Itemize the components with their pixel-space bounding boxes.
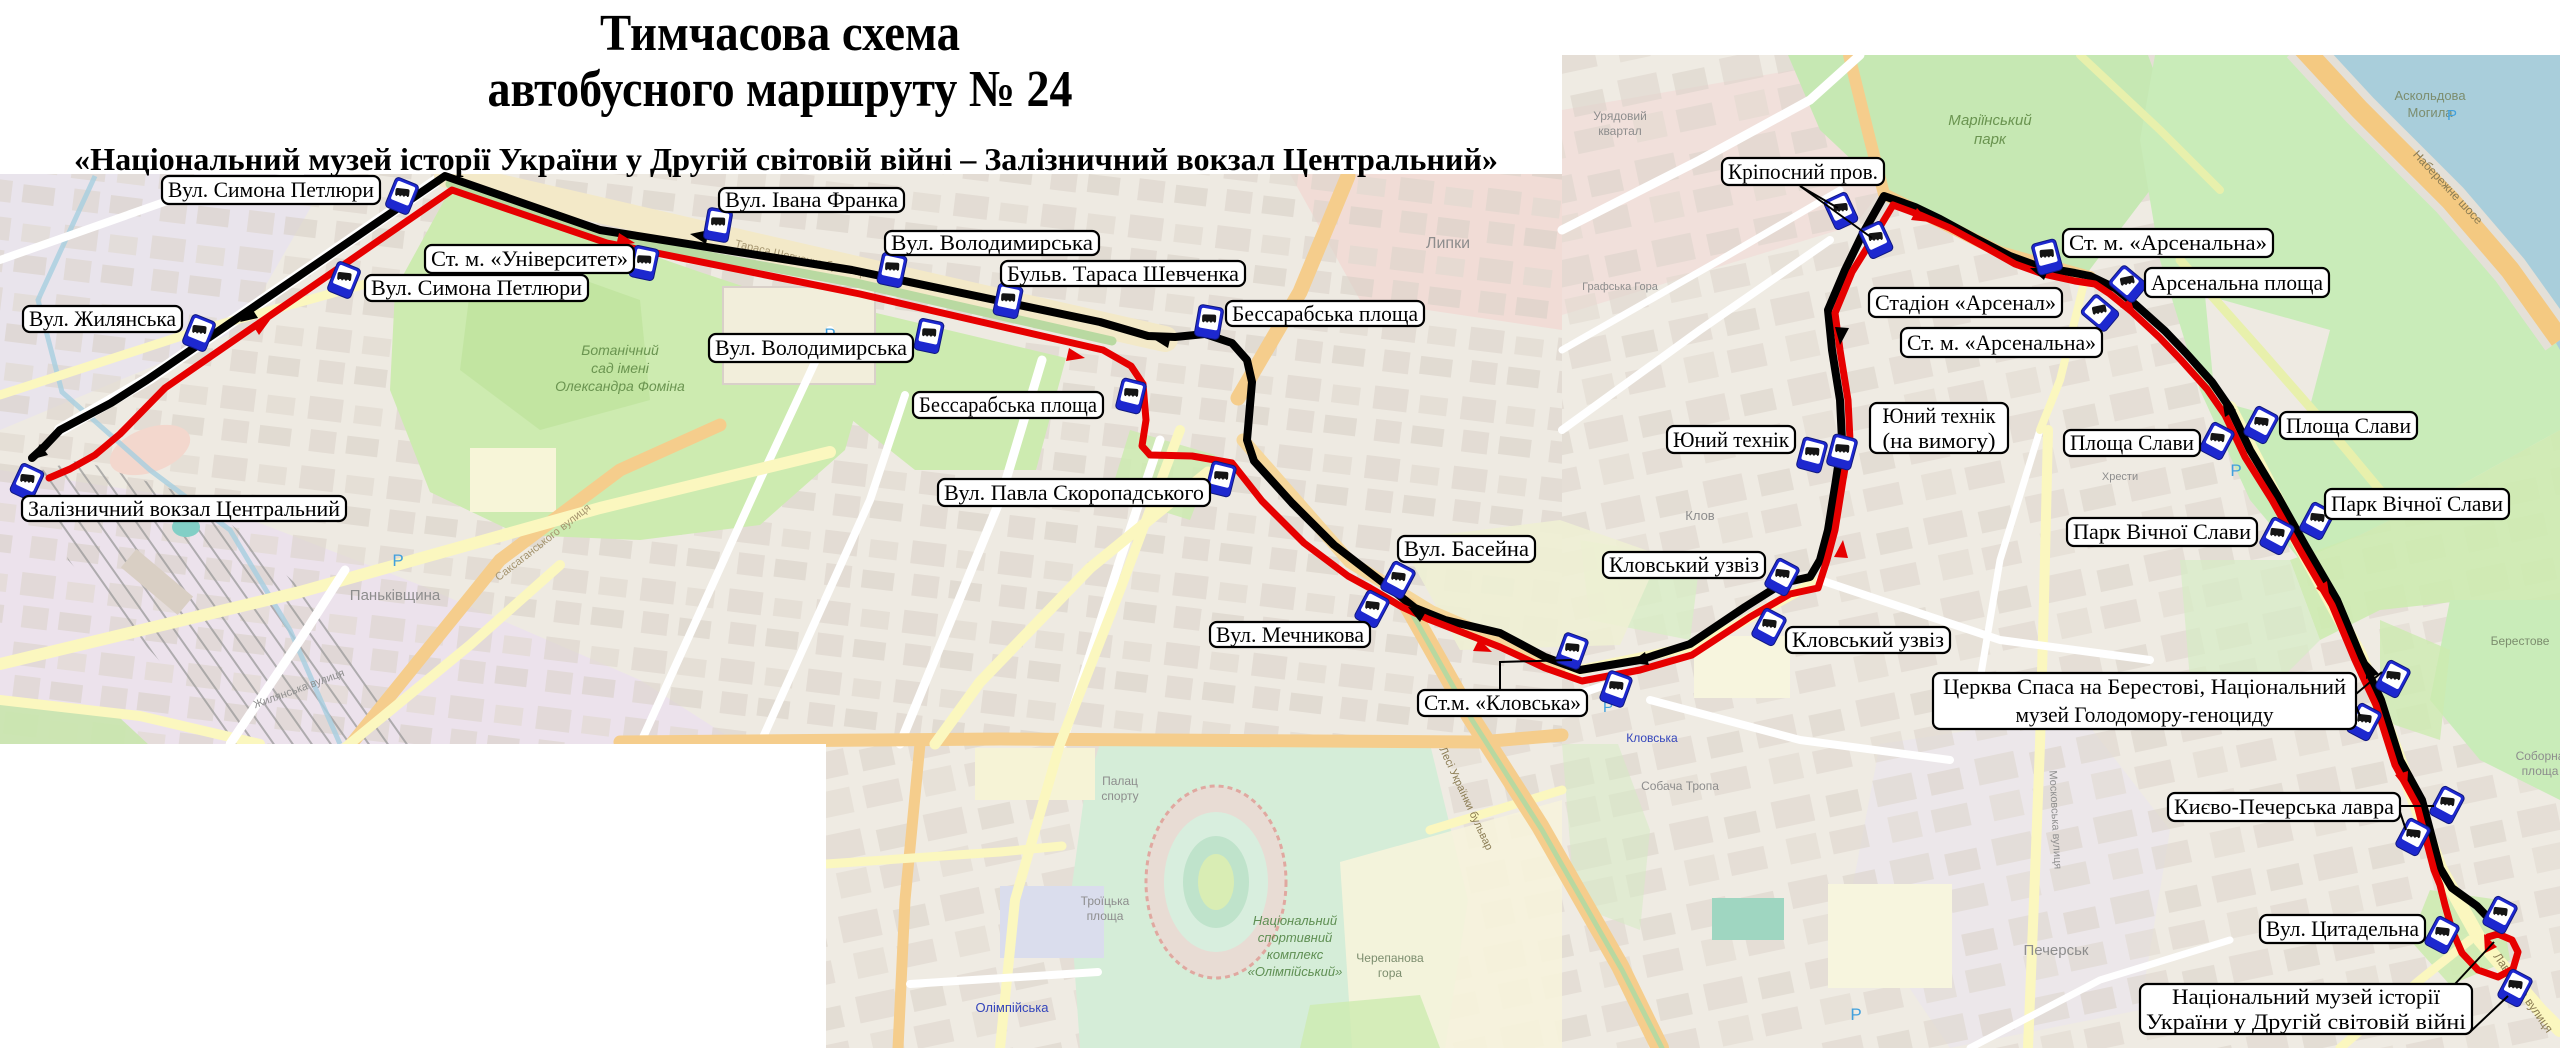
svg-text:Маріїнський: Маріїнський — [1948, 112, 2032, 129]
svg-text:Олімпійська: Олімпійська — [975, 1000, 1049, 1015]
svg-text:P: P — [1850, 1005, 1861, 1024]
svg-text:Бессарабська площа: Бессарабська площа — [919, 392, 1097, 417]
svg-text:Тимчасова схема: Тимчасова схема — [600, 5, 960, 62]
svg-text:Ст. м. «Арсенальна»: Ст. м. «Арсенальна» — [1907, 330, 2096, 355]
svg-text:P: P — [392, 551, 403, 570]
svg-text:Юний технік: Юний технік — [1673, 427, 1789, 452]
svg-text:Вул. Павла Скоропадського: Вул. Павла Скоропадського — [944, 480, 1204, 505]
svg-text:Стадіон «Арсенал»: Стадіон «Арсенал» — [1875, 290, 2056, 315]
svg-text:квартал: квартал — [1598, 124, 1642, 138]
svg-text:Соборна: Соборна — [2516, 749, 2560, 763]
svg-text:сад імені: сад імені — [591, 360, 650, 376]
svg-text:автобусного маршруту № 24: автобусного маршруту № 24 — [488, 61, 1073, 118]
svg-text:Берестове: Берестове — [2491, 634, 2550, 648]
svg-text:«Олімпійський»: «Олімпійський» — [1248, 964, 1343, 979]
svg-text:Палац: Палац — [1102, 774, 1138, 788]
svg-text:Парк Вічної Слави: Парк Вічної Слави — [2331, 491, 2503, 516]
svg-text:Урядовий: Урядовий — [1593, 109, 1647, 123]
svg-text:Собача Тропа: Собача Тропа — [1641, 779, 1719, 793]
svg-text:Бульв. Тараса Шевченка: Бульв. Тараса Шевченка — [1007, 261, 1239, 286]
svg-text:Хрести: Хрести — [2102, 471, 2138, 483]
svg-text:Площа Слави: Площа Слави — [2070, 430, 2194, 455]
svg-text:Вул. Симона Петлюри: Вул. Симона Петлюри — [168, 177, 374, 202]
svg-text:Аскольдова: Аскольдова — [2394, 88, 2466, 103]
svg-text:Національний музей історії: Національний музей історії — [2172, 984, 2441, 1009]
svg-text:Ст. м. «Арсенальна»: Ст. м. «Арсенальна» — [2069, 230, 2267, 255]
svg-text:Вул. Володимирська: Вул. Володимирська — [715, 335, 907, 360]
svg-text:Парк Вічної Слави: Парк Вічної Слави — [2073, 519, 2251, 544]
svg-text:«Національний музей історії Ук: «Національний музей історії України у Др… — [74, 141, 1498, 177]
svg-text:Ботанічний: Ботанічний — [581, 342, 659, 358]
svg-text:P: P — [2447, 107, 2457, 124]
svg-text:Бессарабська площа: Бессарабська площа — [1232, 301, 1418, 326]
svg-text:Вул. Івана Франка: Вул. Івана Франка — [725, 187, 898, 212]
svg-text:Троїцька: Троїцька — [1081, 894, 1130, 908]
svg-text:Церква Спаса на Берестові, Нац: Церква Спаса на Берестові, Національний — [1943, 674, 2346, 699]
svg-text:Печерськ: Печерськ — [2023, 942, 2088, 959]
svg-text:Кріпосний пров.: Кріпосний пров. — [1728, 159, 1878, 184]
svg-text:P: P — [2230, 461, 2241, 480]
svg-text:Черепанова: Черепанова — [1356, 951, 1424, 965]
svg-text:спорту: спорту — [1101, 789, 1138, 803]
svg-text:Липки: Липки — [1426, 235, 1470, 252]
svg-text:Ст.м. «Кловська»: Ст.м. «Кловська» — [1424, 690, 1581, 715]
svg-text:площа: площа — [1087, 909, 1124, 923]
svg-text:музей Голодомору-геноциду: музей Голодомору-геноциду — [2016, 702, 2274, 727]
svg-text:Вул. Мечникова: Вул. Мечникова — [1216, 622, 1364, 647]
svg-text:(на вимогу): (на вимогу) — [1883, 428, 1996, 453]
svg-text:Кловська: Кловська — [1626, 731, 1678, 745]
svg-text:Вул. Басейна: Вул. Басейна — [1404, 536, 1529, 561]
svg-text:Вул. Цитадельна: Вул. Цитадельна — [2266, 916, 2419, 941]
svg-text:Олександра Фоміна: Олександра Фоміна — [555, 378, 685, 394]
svg-text:Ст. м. «Університет»: Ст. м. «Університет» — [431, 246, 628, 271]
svg-text:Кловський узвіз: Кловський узвіз — [1609, 552, 1759, 577]
svg-text:Національний: Національний — [1253, 913, 1337, 928]
svg-text:Києво-Печерська лавра: Києво-Печерська лавра — [2174, 794, 2394, 819]
svg-text:Вул. Симона Петлюри: Вул. Симона Петлюри — [371, 275, 582, 300]
svg-text:Кловський узвіз: Кловський узвіз — [1792, 627, 1944, 652]
svg-text:Залізничний вокзал Центральний: Залізничний вокзал Центральний — [28, 496, 340, 521]
svg-text:Юний технік: Юний технік — [1883, 403, 1996, 428]
svg-text:Клов: Клов — [1685, 508, 1715, 523]
svg-text:гора: гора — [1378, 966, 1402, 980]
svg-text:Арсенальна площа: Арсенальна площа — [2151, 270, 2323, 295]
svg-text:Паньківщина: Паньківщина — [350, 587, 441, 604]
svg-text:Вул. Жилянська: Вул. Жилянська — [29, 306, 176, 331]
svg-text:Площа Слави: Площа Слави — [2286, 413, 2411, 438]
svg-text:України у Другій світовій війн: України у Другій світовій війні — [2146, 1009, 2466, 1034]
svg-text:Вул. Володимирська: Вул. Володимирська — [891, 230, 1093, 255]
svg-text:Графська Гора: Графська Гора — [1582, 281, 1659, 293]
svg-text:площа: площа — [2522, 764, 2559, 778]
svg-text:спортивний: спортивний — [1258, 930, 1333, 945]
svg-text:парк: парк — [1974, 131, 2007, 148]
svg-text:комплекс: комплекс — [1267, 947, 1324, 962]
